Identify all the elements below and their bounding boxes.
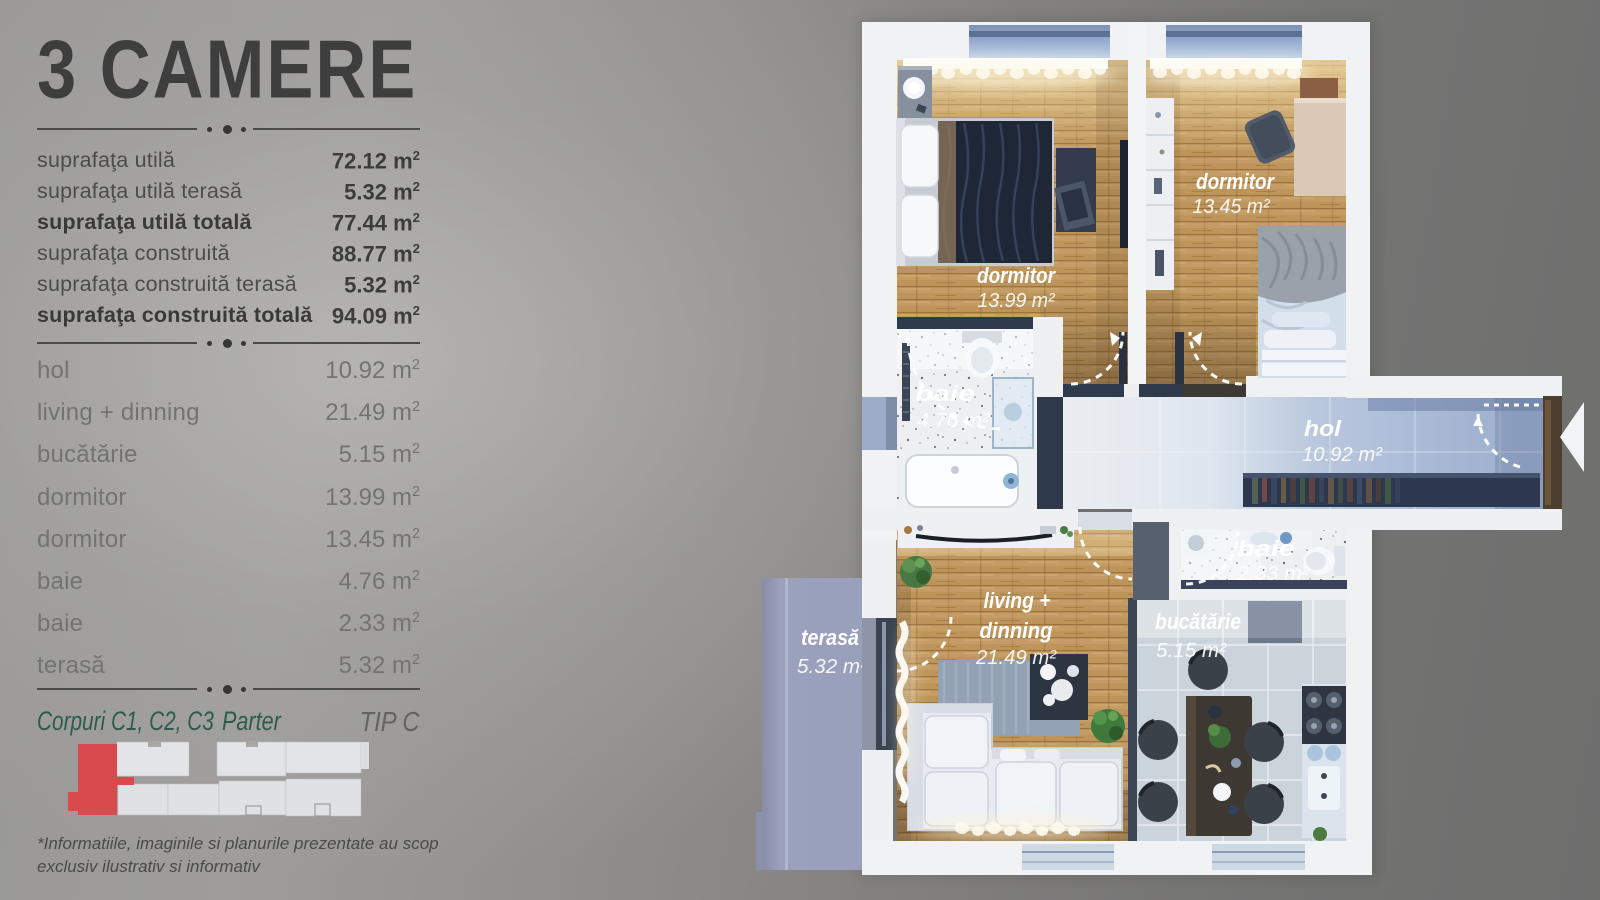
svg-text:5.32 m²: 5.32 m²	[797, 656, 868, 678]
svg-text:hol: hol	[1304, 416, 1342, 441]
svg-text:21.49 m²: 21.49 m²	[975, 647, 1057, 669]
svg-text:terasă: terasă	[801, 625, 859, 650]
svg-text:4.76 m²: 4.76 m²	[917, 410, 990, 432]
svg-text:dormitor: dormitor	[977, 263, 1056, 288]
svg-text:bucătărie: bucătărie	[1155, 609, 1241, 634]
svg-text:living +: living +	[984, 588, 1051, 613]
svg-text:13.99 m²: 13.99 m²	[978, 290, 1056, 312]
svg-text:10.92 m²: 10.92 m²	[1302, 444, 1383, 466]
svg-text:dinning: dinning	[980, 618, 1054, 643]
svg-text:5.15 m²: 5.15 m²	[1156, 640, 1227, 662]
svg-text:dormitor: dormitor	[1196, 169, 1275, 194]
svg-text:baie: baie	[1237, 536, 1295, 561]
svg-text:2.33 m²: 2.33 m²	[1236, 563, 1310, 585]
svg-text:baie: baie	[915, 381, 975, 406]
svg-text:13.45 m²: 13.45 m²	[1193, 196, 1271, 218]
